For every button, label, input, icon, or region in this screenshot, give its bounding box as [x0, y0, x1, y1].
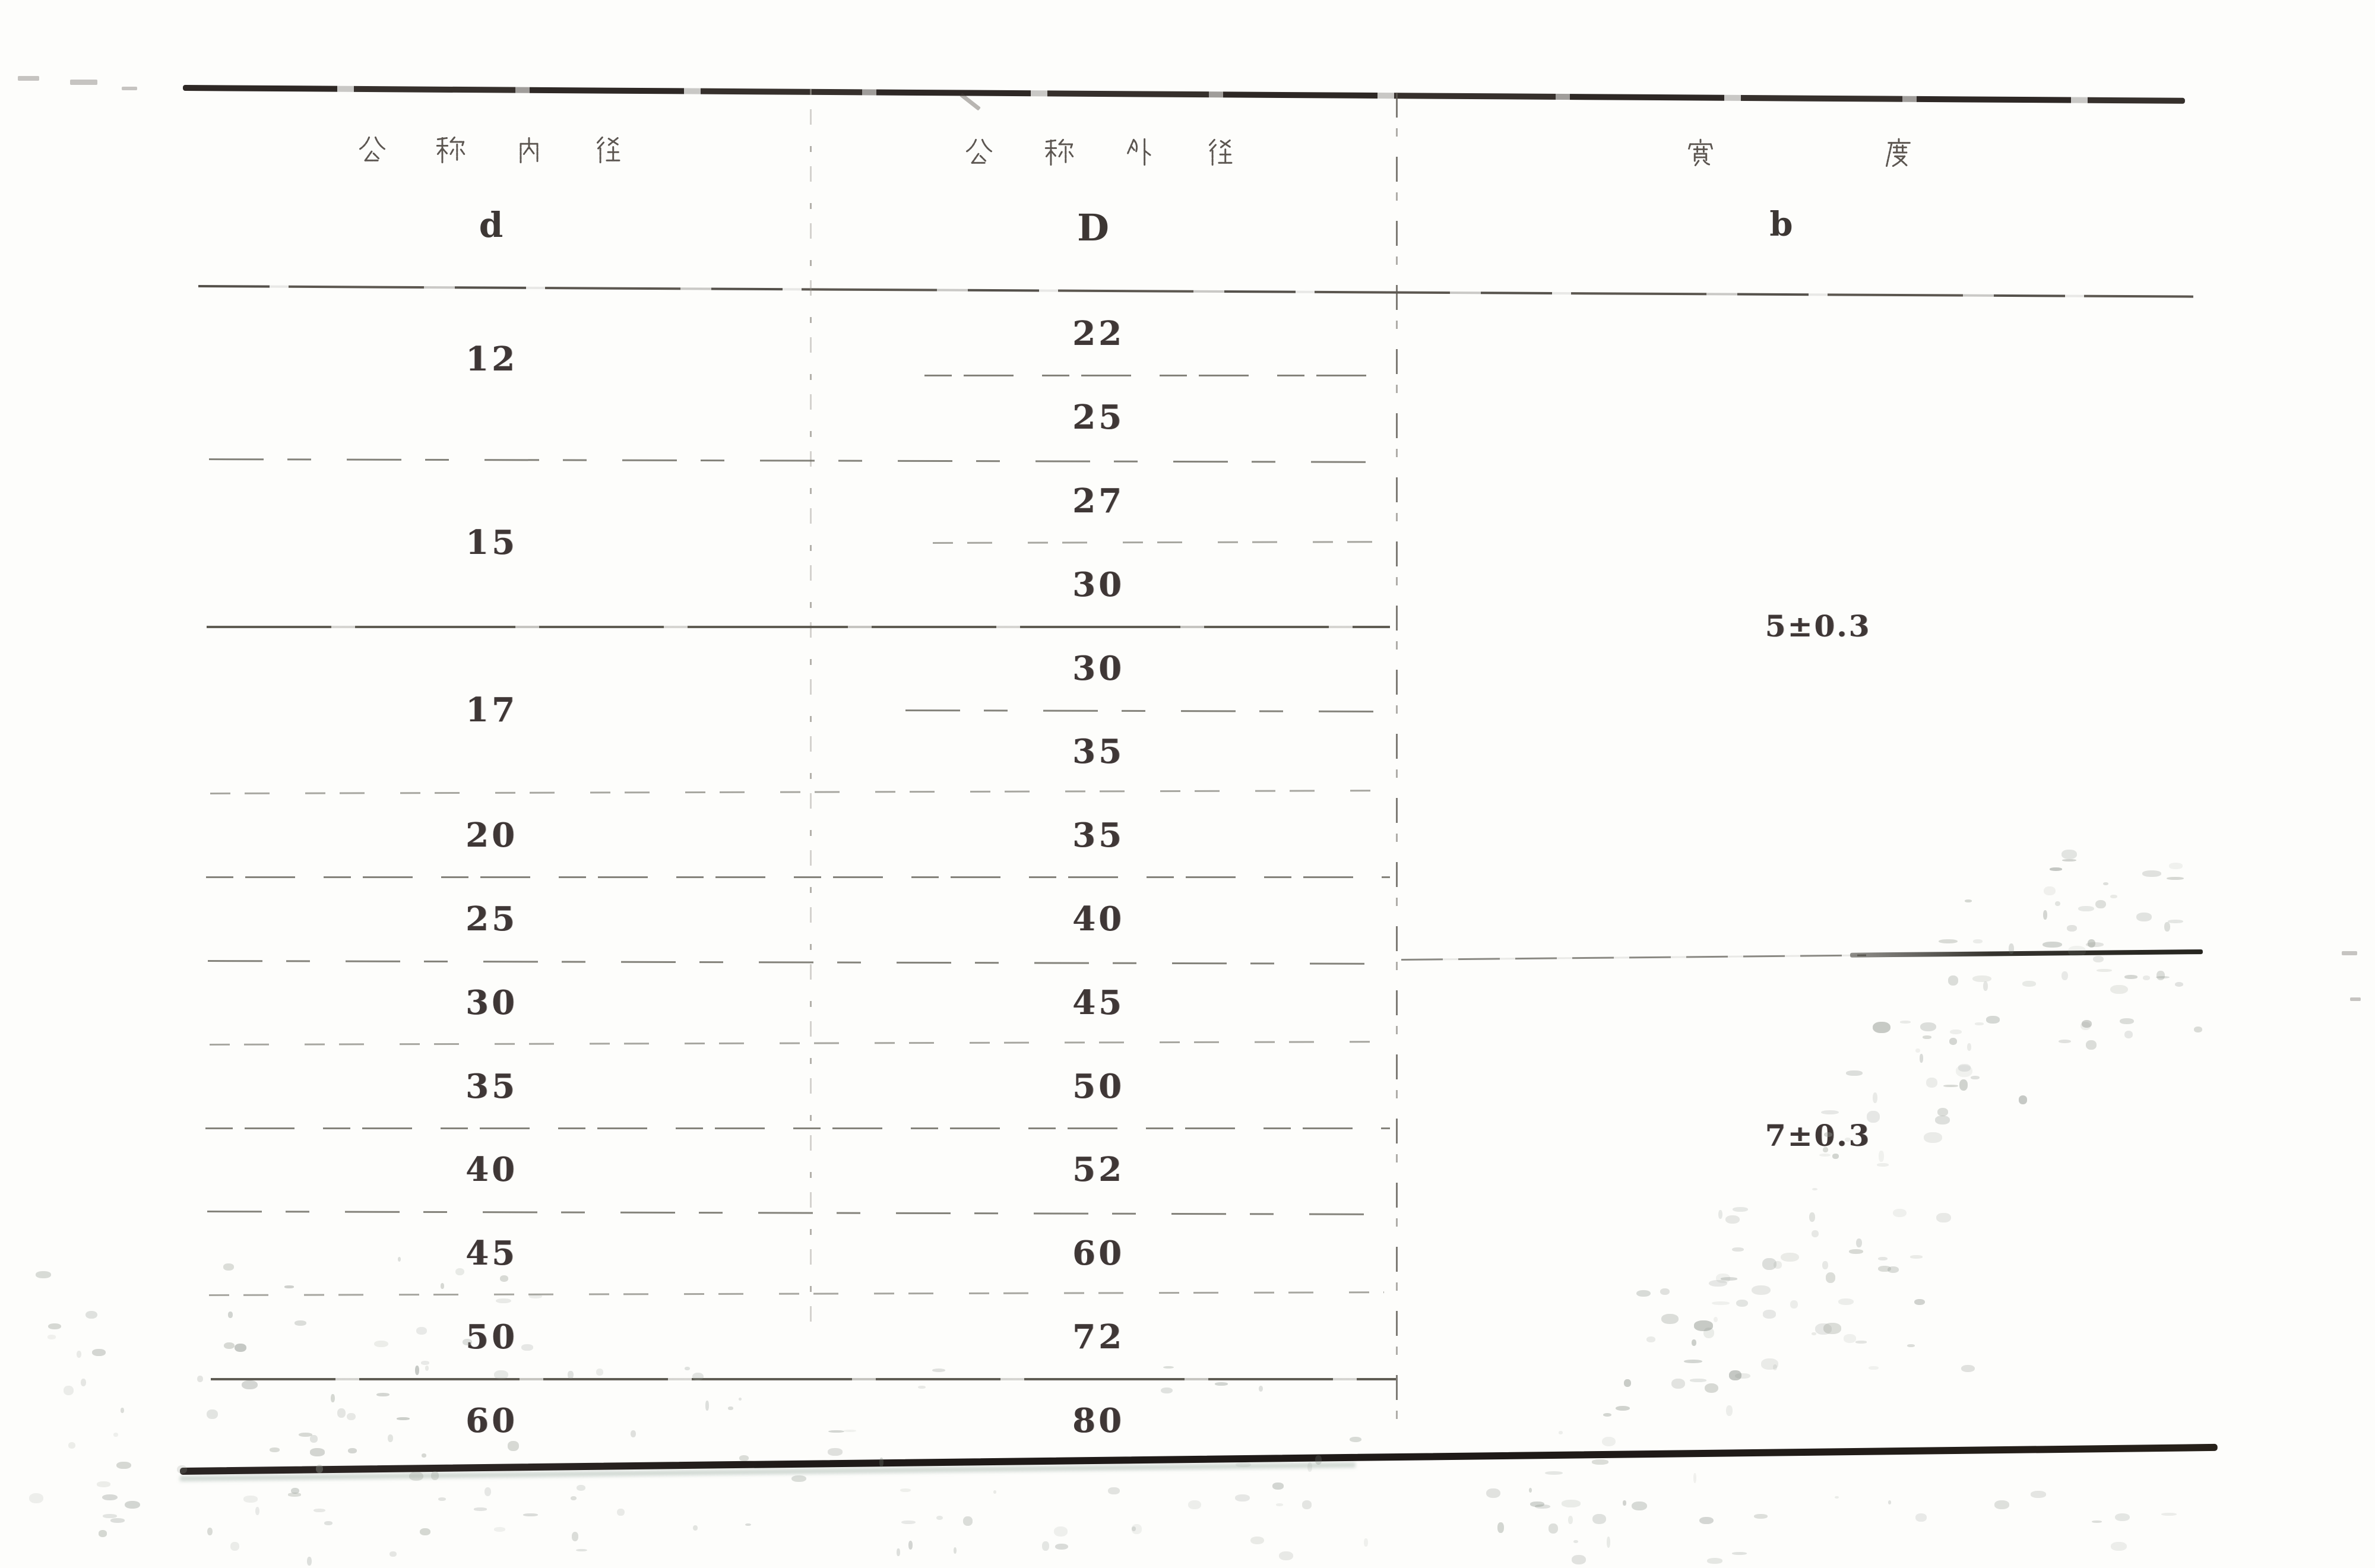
- column-divider-2: [1396, 93, 1398, 1424]
- noise-speck: [2044, 886, 2056, 895]
- noise-speck: [1132, 1524, 1142, 1534]
- scanned-page: d D b 2225122730153035173520402545305035…: [0, 0, 2375, 1568]
- noise-speck: [1632, 1502, 1647, 1510]
- noise-speck: [1781, 1253, 1799, 1262]
- noise-speck: [463, 1339, 472, 1345]
- noise-speck: [1888, 1500, 1891, 1504]
- noise-speck: [1915, 1513, 1927, 1522]
- noise-speck: [1364, 1538, 1368, 1547]
- noise-speck: [1845, 1138, 1851, 1142]
- noise-speck: [294, 1320, 306, 1326]
- noise-speck: [617, 1509, 624, 1516]
- noise-speck: [230, 1542, 239, 1551]
- noise-speck: [1108, 1487, 1120, 1494]
- noise-speck: [1302, 1500, 1312, 1509]
- noise-speck: [1497, 1522, 1504, 1533]
- row-separator: [933, 541, 1401, 544]
- cjk-character: [1123, 137, 1155, 169]
- outer-diameter-value: 35: [1072, 819, 1125, 852]
- outer-diameter-value: 72: [1072, 1320, 1125, 1354]
- noise-speck: [64, 1386, 74, 1395]
- noise-speck: [1694, 1320, 1713, 1331]
- noise-speck: [374, 1341, 388, 1347]
- noise-speck: [1545, 1471, 1563, 1475]
- noise-speck: [1235, 1494, 1250, 1502]
- noise-speck: [1879, 1151, 1883, 1162]
- noise-speck: [1712, 1301, 1730, 1305]
- scan-mark: [2342, 951, 2357, 955]
- noise-speck: [1350, 1437, 1362, 1442]
- noise-speck: [92, 1349, 106, 1356]
- scan-mark: [2350, 997, 2361, 1001]
- inner-diameter-value: 50: [465, 1320, 518, 1354]
- noise-speck: [1972, 975, 1991, 982]
- noise-speck: [1607, 1537, 1610, 1548]
- inner-diameter-value: 25: [465, 902, 518, 936]
- noise-speck: [2164, 922, 2170, 932]
- noise-speck: [2092, 1521, 2101, 1523]
- inner-diameter-value: 60: [465, 1404, 518, 1437]
- noise-speck: [1915, 1048, 1920, 1053]
- noise-speck: [932, 1369, 946, 1372]
- noise-speck: [631, 1430, 636, 1437]
- noise-speck: [291, 1488, 299, 1494]
- noise-speck: [415, 1366, 419, 1375]
- noise-speck: [2169, 863, 2183, 869]
- row-separator: [924, 375, 1383, 376]
- noise-speck: [102, 1494, 118, 1501]
- noise-speck: [936, 1516, 943, 1520]
- noise-speck: [310, 1435, 317, 1443]
- noise-speck: [425, 1366, 429, 1370]
- noise-speck: [474, 1507, 487, 1510]
- noise-speck: [494, 1370, 508, 1379]
- noise-speck: [2161, 1513, 2177, 1516]
- inner-diameter-value: 17: [465, 693, 518, 727]
- noise-speck: [1661, 1314, 1678, 1324]
- noise-speck: [1729, 1370, 1741, 1380]
- noise-speck: [1529, 1488, 1532, 1493]
- cjk-character: [963, 137, 995, 169]
- noise-speck: [1707, 1558, 1722, 1564]
- noise-speck: [1846, 1070, 1862, 1076]
- noise-speck: [1949, 1038, 1958, 1045]
- width-value: 7±0.3: [1765, 1121, 1871, 1151]
- noise-speck: [529, 1294, 542, 1298]
- noise-speck: [1821, 1110, 1839, 1114]
- symbol-inner-diameter: d: [479, 208, 503, 242]
- noise-speck: [576, 1549, 587, 1552]
- noise-speck: [1926, 1078, 1937, 1088]
- noise-speck: [1705, 1383, 1718, 1393]
- noise-speck: [791, 1475, 806, 1482]
- width-value: 5±0.3: [1765, 612, 1871, 641]
- noise-speck: [500, 1275, 508, 1282]
- noise-speck: [2095, 900, 2106, 909]
- noise-speck: [1259, 1386, 1263, 1392]
- outer-diameter-value: 45: [1072, 986, 1125, 1019]
- noise-speck: [1967, 1043, 1971, 1051]
- noise-speck: [99, 1530, 107, 1537]
- noise-speck: [1692, 1339, 1696, 1346]
- cjk-character: [1204, 137, 1236, 169]
- noise-speck: [1956, 1065, 1972, 1077]
- noise-speck: [2019, 1095, 2028, 1104]
- noise-speck: [1920, 1022, 1936, 1031]
- separator-solid-part: [1850, 949, 2203, 958]
- noise-speck: [2167, 877, 2184, 880]
- noise-speck: [1592, 1459, 1608, 1464]
- noise-speck: [409, 1472, 423, 1481]
- column-divider-1: [810, 89, 812, 1343]
- noise-speck: [1736, 1300, 1748, 1307]
- noise-speck: [1754, 1514, 1768, 1519]
- noise-speck: [85, 1311, 98, 1319]
- row-separator: [210, 790, 1384, 794]
- noise-speck: [348, 1448, 357, 1453]
- noise-speck: [1856, 1238, 1862, 1248]
- noise-speck: [177, 1465, 187, 1474]
- row-separator: [208, 960, 1387, 965]
- noise-speck: [1986, 1016, 2000, 1023]
- table-bottom-border: [180, 1444, 2218, 1475]
- inner-diameter-value: 15: [465, 526, 518, 559]
- noise-speck: [103, 1514, 117, 1518]
- inner-diameter-value: 12: [465, 343, 518, 376]
- noise-speck: [2043, 910, 2047, 920]
- header-width-title: [1684, 138, 1915, 170]
- noise-speck: [1559, 1431, 1563, 1434]
- noise-speck: [2009, 943, 2014, 954]
- noise-speck: [1937, 1108, 1949, 1116]
- noise-speck: [1994, 1500, 2009, 1509]
- row-separator: [210, 1041, 1384, 1046]
- noise-speck: [223, 1263, 234, 1271]
- noise-speck: [1812, 1188, 1817, 1190]
- noise-speck: [1307, 1462, 1312, 1472]
- noise-speck: [1849, 1249, 1863, 1254]
- noise-speck: [1188, 1500, 1201, 1509]
- noise-speck: [1809, 1212, 1815, 1222]
- noise-speck: [1272, 1483, 1284, 1490]
- noise-speck: [844, 1430, 856, 1432]
- noise-speck: [2067, 925, 2077, 932]
- noise-speck: [1636, 1290, 1651, 1297]
- inner-diameter-value: 45: [465, 1237, 518, 1270]
- noise-speck: [2082, 1020, 2092, 1028]
- noise-speck: [523, 1513, 538, 1516]
- noise-speck: [1936, 1213, 1950, 1222]
- noise-speck: [2143, 975, 2151, 980]
- noise-speck: [1276, 1503, 1283, 1506]
- noise-speck: [324, 1521, 332, 1525]
- noise-speck: [1733, 1207, 1749, 1212]
- noise-speck: [2110, 895, 2117, 898]
- noise-speck: [77, 1351, 81, 1358]
- inner-diameter-value: 35: [465, 1070, 518, 1103]
- symbol-width: b: [1769, 208, 1793, 241]
- cjk-character: [513, 134, 545, 166]
- outer-diameter-value: 30: [1072, 568, 1125, 601]
- noise-speck: [307, 1557, 312, 1566]
- noise-speck: [1819, 1154, 1831, 1157]
- noise-speck: [2124, 975, 2138, 979]
- row-separator: [206, 876, 1390, 878]
- cjk-character: [1043, 137, 1075, 169]
- noise-speck: [2022, 981, 2036, 986]
- outer-diameter-value: 50: [1072, 1070, 1125, 1103]
- noise-speck: [1950, 1030, 1961, 1034]
- noise-speck: [828, 1448, 843, 1455]
- noise-speck: [1907, 1344, 1915, 1347]
- row-separator: [207, 1211, 1387, 1215]
- noise-speck: [2136, 913, 2152, 921]
- noise-speck: [331, 1394, 335, 1403]
- noise-speck: [1646, 1336, 1655, 1342]
- noise-speck: [68, 1442, 75, 1449]
- noise-speck: [745, 1523, 751, 1526]
- noise-speck: [1943, 1085, 1958, 1087]
- outer-diameter-value: 35: [1072, 735, 1125, 768]
- noise-speck: [901, 1521, 916, 1524]
- scan-mark: [122, 87, 137, 90]
- noise-speck: [1914, 1299, 1925, 1306]
- noise-speck: [97, 1481, 110, 1487]
- noise-speck: [1855, 1341, 1867, 1343]
- noise-speck: [1623, 1500, 1626, 1506]
- noise-speck: [1699, 1517, 1714, 1525]
- noise-speck: [2031, 1491, 2046, 1497]
- header-separator-line: [198, 285, 2193, 298]
- noise-speck: [496, 1298, 511, 1303]
- noise-speck: [2086, 1040, 2097, 1050]
- noise-speck: [1279, 1551, 1293, 1560]
- noise-speck: [110, 1518, 125, 1523]
- noise-speck: [572, 1532, 579, 1541]
- noise-speck: [1548, 1523, 1558, 1534]
- noise-speck: [1900, 1021, 1911, 1023]
- outer-diameter-value: 25: [1072, 401, 1125, 434]
- noise-speck: [1773, 1364, 1777, 1370]
- noise-speck: [993, 1490, 997, 1494]
- noise-speck: [422, 1453, 426, 1458]
- noise-speck: [376, 1393, 389, 1396]
- noise-speck: [1983, 981, 1988, 991]
- noise-speck: [1910, 1255, 1923, 1258]
- noise-speck: [1935, 1116, 1950, 1124]
- noise-speck: [197, 1376, 203, 1382]
- noise-speck: [455, 1268, 464, 1276]
- noise-speck: [2061, 850, 2077, 859]
- noise-speck: [235, 1344, 246, 1352]
- noise-speck: [1163, 1366, 1174, 1369]
- noise-speck: [431, 1471, 439, 1480]
- noise-speck: [1971, 1076, 1980, 1079]
- noise-speck: [441, 1283, 444, 1289]
- noise-speck: [1236, 1462, 1251, 1467]
- noise-speck: [2086, 942, 2104, 947]
- noise-speck: [2050, 867, 2062, 871]
- noise-speck: [1924, 1132, 1942, 1143]
- noise-speck: [255, 1507, 260, 1515]
- noise-speck: [1690, 1379, 1706, 1382]
- noise-speck: [1714, 1317, 1718, 1322]
- noise-speck: [705, 1401, 709, 1410]
- noise-speck: [879, 1458, 883, 1467]
- noise-speck: [1693, 1473, 1696, 1483]
- noise-speck: [728, 1407, 733, 1410]
- noise-speck: [2111, 1542, 2127, 1551]
- outer-diameter-value: 40: [1072, 902, 1125, 936]
- noise-speck: [207, 1528, 213, 1536]
- noise-speck: [389, 1551, 397, 1557]
- noise-speck: [2110, 985, 2128, 994]
- noise-speck: [1877, 1163, 1889, 1167]
- noise-speck: [577, 1485, 585, 1491]
- noise-speck: [1671, 1379, 1685, 1389]
- noise-speck: [693, 1525, 698, 1531]
- noise-speck: [1815, 1323, 1832, 1335]
- noise-speck: [1822, 1261, 1828, 1269]
- noise-speck: [1616, 1406, 1630, 1411]
- noise-speck: [2194, 1027, 2202, 1032]
- noise-speck: [2059, 1040, 2071, 1043]
- outer-diameter-value: 60: [1072, 1237, 1125, 1270]
- noise-speck: [1939, 939, 1957, 943]
- noise-speck: [125, 1501, 140, 1509]
- noise-speck: [2103, 882, 2109, 885]
- row-separator: [209, 458, 1387, 463]
- noise-speck: [316, 1465, 323, 1473]
- noise-speck: [2042, 942, 2062, 948]
- noise-speck: [1867, 1111, 1880, 1123]
- scan-mark: [18, 76, 39, 81]
- noise-speck: [1752, 1285, 1771, 1295]
- noise-speck: [397, 1417, 410, 1420]
- noise-speck: [2078, 906, 2094, 911]
- inner-diameter-value: 20: [465, 819, 518, 852]
- noise-speck: [47, 1335, 56, 1339]
- noise-speck: [2142, 870, 2161, 877]
- noise-speck: [1878, 1266, 1891, 1272]
- noise-speck: [113, 1433, 118, 1437]
- noise-speck: [242, 1380, 258, 1389]
- noise-speck: [1973, 939, 1983, 943]
- noise-speck: [1873, 1022, 1890, 1033]
- noise-speck: [1838, 1298, 1854, 1305]
- noise-speck: [897, 1548, 900, 1556]
- noise-speck: [1725, 1215, 1740, 1224]
- noise-speck: [438, 1497, 446, 1501]
- noise-speck: [347, 1413, 356, 1420]
- noise-speck: [484, 1487, 492, 1496]
- outer-diameter-value: 30: [1072, 652, 1125, 685]
- noise-speck: [596, 1369, 603, 1376]
- noise-speck: [270, 1447, 280, 1452]
- noise-speck: [2175, 982, 2184, 987]
- cjk-character: [1684, 138, 1717, 170]
- noise-speck: [918, 1386, 926, 1389]
- noise-speck: [2093, 956, 2104, 962]
- noise-speck: [828, 1430, 844, 1433]
- noise-speck: [1812, 1230, 1819, 1237]
- noise-speck: [1603, 1413, 1611, 1417]
- noise-speck: [2097, 969, 2112, 972]
- noise-speck: [1315, 1455, 1322, 1465]
- noise-speck: [81, 1379, 86, 1386]
- inner-diameter-value: 30: [465, 986, 518, 1019]
- noise-speck: [1042, 1541, 1049, 1551]
- noise-speck: [421, 1361, 429, 1364]
- noise-speck: [1920, 1054, 1923, 1062]
- noise-speck: [954, 1547, 957, 1554]
- noise-speck: [224, 1342, 235, 1349]
- header-outer-diameter-title: [963, 137, 1236, 169]
- symbol-outer-diameter: D: [1077, 210, 1109, 246]
- noise-speck: [1055, 1544, 1069, 1550]
- noise-speck: [1726, 1405, 1733, 1416]
- noise-speck: [568, 1371, 573, 1379]
- separator-faint-part: [1401, 954, 1866, 961]
- cjk-character: [435, 134, 467, 166]
- noise-speck: [1486, 1488, 1500, 1498]
- noise-speck: [1832, 1154, 1839, 1158]
- noise-speck: [1965, 899, 1972, 902]
- noise-speck: [1812, 1332, 1816, 1335]
- noise-speck: [2061, 971, 2068, 980]
- noise-speck: [739, 1398, 742, 1401]
- noise-speck: [207, 1409, 218, 1419]
- noise-speck: [398, 1257, 401, 1262]
- noise-speck: [1844, 1334, 1856, 1342]
- noise-speck: [1624, 1379, 1631, 1387]
- noise-speck: [1573, 1540, 1578, 1544]
- noise-speck: [2120, 1018, 2134, 1024]
- noise-speck: [1592, 1514, 1605, 1524]
- noise-speck: [121, 1408, 123, 1413]
- noise-speck: [2062, 859, 2076, 861]
- noise-speck: [1161, 1388, 1173, 1393]
- noise-speck: [243, 1496, 258, 1502]
- noise-speck: [1823, 1147, 1828, 1152]
- noise-speck: [1562, 1500, 1581, 1507]
- cjk-character: [591, 134, 623, 166]
- noise-speck: [284, 1285, 294, 1288]
- noise-speck: [508, 1441, 519, 1451]
- noise-speck: [1215, 1382, 1228, 1386]
- noise-speck: [1602, 1437, 1616, 1447]
- noise-speck: [1572, 1555, 1586, 1564]
- noise-speck: [2115, 1513, 2130, 1521]
- noise-speck: [420, 1528, 430, 1535]
- row-separator: [905, 709, 1383, 712]
- noise-speck: [1054, 1526, 1068, 1537]
- noise-speck: [1835, 1496, 1838, 1499]
- row-separator: [207, 626, 1390, 628]
- outer-diameter-value: 52: [1072, 1153, 1125, 1186]
- noise-speck: [900, 1488, 911, 1492]
- noise-speck: [2055, 901, 2060, 906]
- noise-speck: [1959, 1079, 1968, 1091]
- scan-mark: [70, 80, 97, 85]
- outer-diameter-value: 22: [1072, 317, 1125, 350]
- noise-speck: [2068, 946, 2086, 956]
- noise-speck: [48, 1323, 61, 1329]
- noise-speck: [1763, 1310, 1776, 1318]
- cjk-character: [356, 134, 388, 166]
- noise-speck: [313, 1509, 325, 1512]
- noise-speck: [1660, 1288, 1670, 1295]
